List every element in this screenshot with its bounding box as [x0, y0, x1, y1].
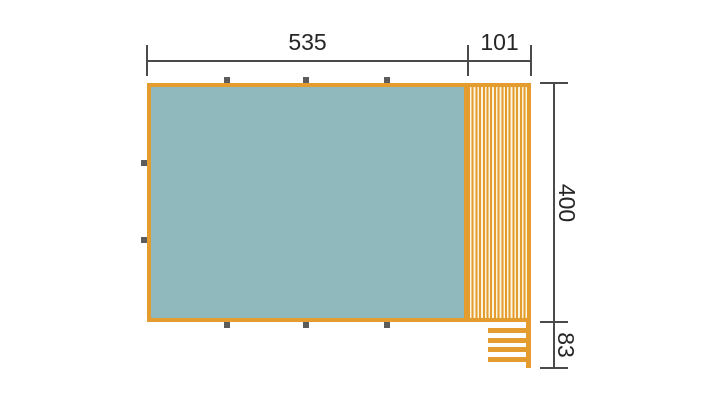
dimension-line-top	[147, 60, 532, 62]
step-tread-3	[488, 347, 526, 352]
step-stringer	[526, 322, 531, 368]
dimension-tick-right-top	[540, 82, 568, 84]
post-marker-bottom-1	[224, 322, 230, 328]
dimension-label-room-width: 535	[147, 31, 468, 54]
deck-area	[468, 87, 527, 318]
post-marker-left-1	[141, 160, 147, 166]
post-marker-top-1	[224, 77, 230, 83]
post-marker-top-2	[303, 77, 309, 83]
room-area	[151, 87, 464, 318]
step-tread-1	[488, 328, 526, 333]
dimension-label-steps-depth: 83	[536, 315, 596, 375]
dimension-label-height: 400	[537, 173, 597, 233]
dimension-label-deck-width: 101	[468, 31, 531, 54]
post-marker-bottom-2	[303, 322, 309, 328]
post-marker-left-2	[141, 237, 147, 243]
building-outline	[147, 83, 531, 322]
floor-plan-canvas: 535 101 400 83	[0, 0, 720, 405]
post-marker-top-3	[384, 77, 390, 83]
step-tread-4	[488, 357, 526, 362]
post-marker-bottom-3	[384, 322, 390, 328]
step-tread-2	[488, 338, 526, 343]
